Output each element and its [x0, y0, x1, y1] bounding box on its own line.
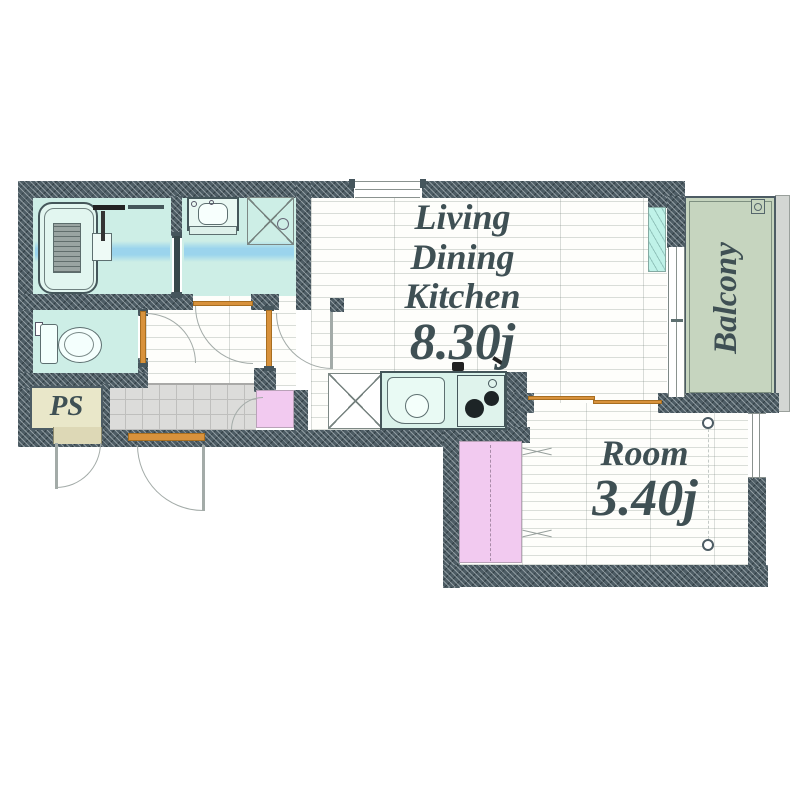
room-window	[748, 413, 766, 478]
room-marker-circle-top	[702, 417, 714, 429]
room-closet	[459, 441, 522, 563]
wall-washroom-right	[296, 181, 311, 310]
washroom-door-leaf	[266, 310, 272, 368]
wall-closet-top	[254, 368, 276, 392]
toilet-door-cap-bottom	[138, 363, 148, 367]
entrance-door-arc	[137, 445, 203, 511]
toilet-door-leaf	[140, 311, 146, 365]
balcony-drain-icon	[751, 199, 765, 214]
ldk-window-strip	[648, 207, 666, 272]
ldk-size-label: 8.30j	[355, 314, 570, 371]
sink-drain	[405, 394, 429, 418]
ldk-label-line1: Living	[355, 198, 570, 238]
closet-door-wedge-bottom	[522, 526, 552, 542]
entrance-door-leaf	[202, 445, 205, 511]
stove-burner-1	[465, 399, 484, 418]
balcony-label: Balcony	[708, 228, 750, 368]
shower-bar-icon	[93, 205, 125, 210]
wall-closet-right	[294, 390, 308, 430]
ps-label: PS	[30, 391, 103, 423]
closet-door-wedge-top	[522, 444, 552, 460]
toilet-bowl	[58, 327, 102, 363]
wall-under-bath	[18, 294, 193, 310]
refrigerator-space	[328, 373, 383, 429]
washroom-door-cap-bottom	[264, 366, 274, 371]
room-partition-track-2	[593, 400, 662, 404]
wall-room-bottom	[443, 565, 768, 587]
wall-bath-divider-top	[171, 196, 182, 236]
room-marker-circle-bottom	[702, 539, 714, 551]
pipe-space-tab	[53, 427, 102, 444]
towel-bar-icon	[128, 205, 164, 209]
balcony-sliding-door	[668, 247, 685, 397]
wall-ldk-door-jamb	[330, 298, 344, 312]
floorplan-image: Living Dining Kitchen 8.30j Room 3.40j B…	[0, 0, 800, 800]
stove-burner-2	[484, 391, 499, 406]
window-tick-right	[420, 179, 426, 188]
toilet-tank	[40, 324, 58, 364]
bathtub	[38, 202, 98, 294]
ldk-label-line3: Kitchen	[355, 277, 570, 317]
washer-drain-icon	[277, 218, 289, 230]
balcony-outer-wall	[775, 195, 790, 412]
bath-door-cap-bottom	[172, 292, 182, 298]
wall-entrance-left-jamb	[103, 384, 110, 430]
room-label: Room	[552, 434, 737, 474]
ldk-label: Living Dining Kitchen	[355, 198, 570, 317]
wall-ldk-right	[667, 196, 685, 248]
room-partition-track-1	[528, 396, 595, 400]
utility-door-arc	[56, 443, 101, 488]
shower-hose-icon	[101, 211, 105, 241]
stove-burner-3	[488, 379, 497, 388]
ldk-label-line2: Dining	[355, 238, 570, 278]
top-wall-window	[355, 181, 420, 198]
ldk-door-leaf	[330, 312, 333, 369]
vanity-cabinet	[189, 226, 237, 235]
wall-top-right	[422, 181, 685, 198]
bath-sliding-door	[174, 236, 180, 294]
entrance-door-threshold	[128, 433, 205, 441]
room-size-label: 3.40j	[535, 470, 755, 527]
kitchen-counter	[380, 371, 507, 430]
utility-door-leaf	[55, 443, 58, 489]
